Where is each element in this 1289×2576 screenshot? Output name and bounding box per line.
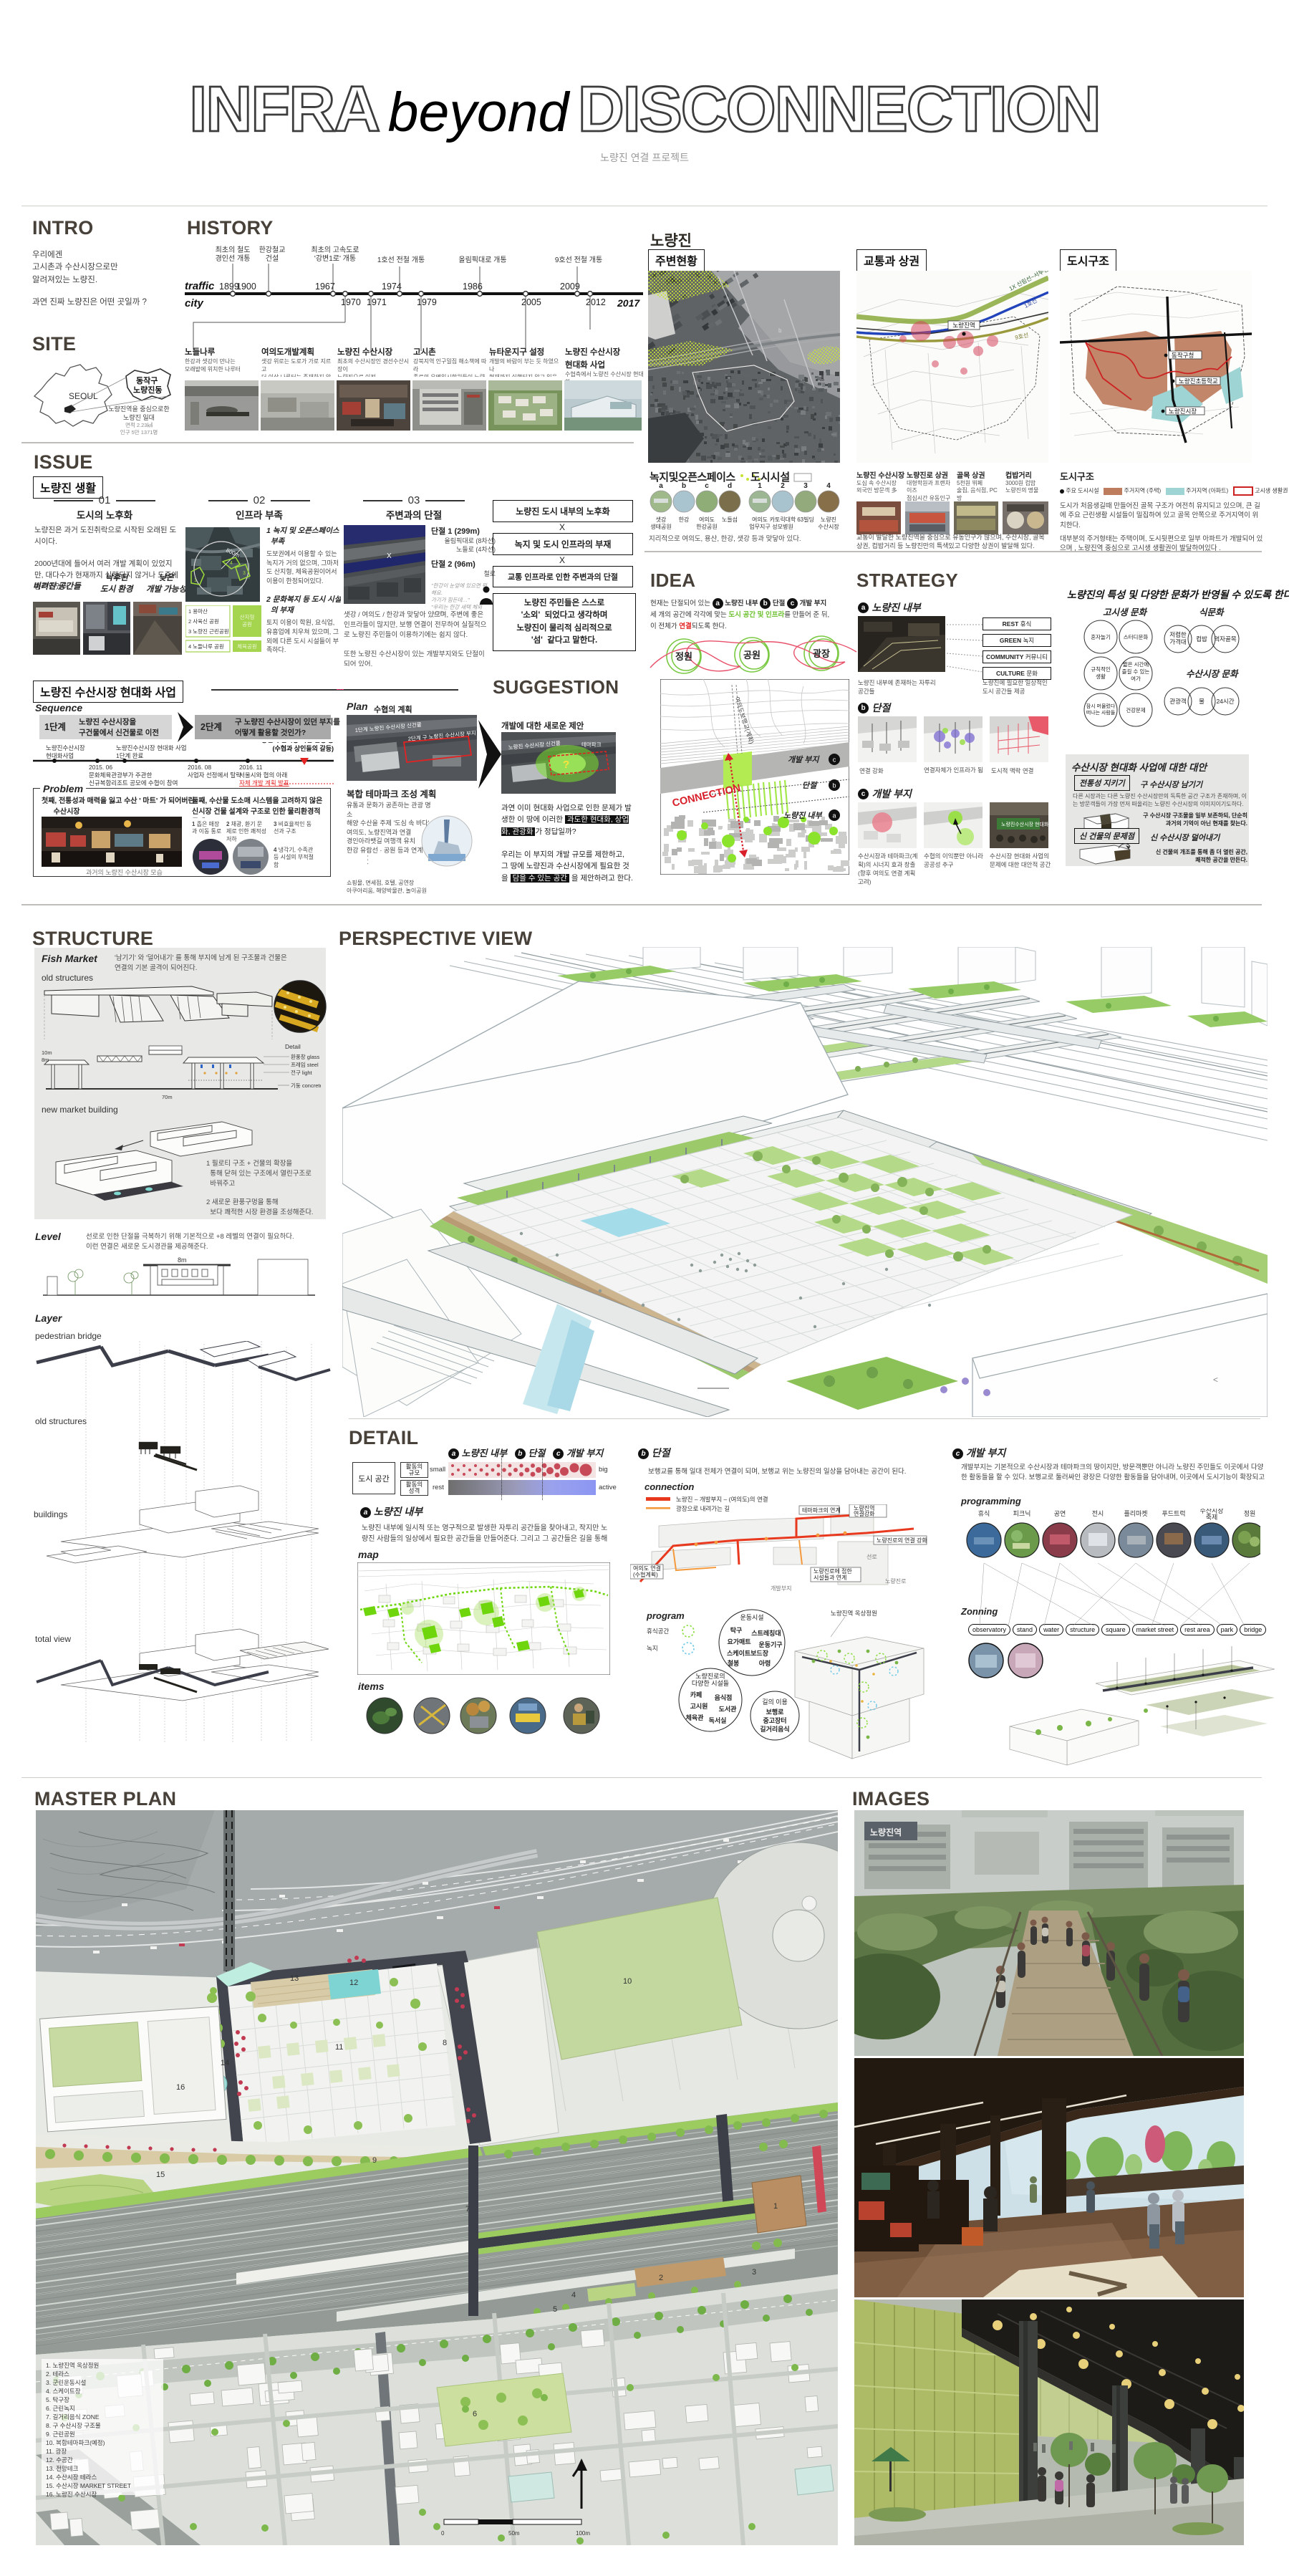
svg-text:노량진로의: 노량진로의 [695, 1672, 725, 1680]
svg-text:철봉: 철봉 [728, 1659, 740, 1667]
svg-text:짧은 시간에: 짧은 시간에 [1123, 660, 1149, 668]
svg-text:스케이트보드장: 스케이트보드장 [727, 1649, 769, 1657]
svg-text:3: 3 [243, 571, 246, 576]
svg-text:길거리음식: 길거리음식 [760, 1725, 789, 1733]
svg-text:a: a [832, 812, 836, 820]
svg-text:독서실: 독서실 [709, 1716, 727, 1724]
svg-text:광장: 광장 [813, 648, 830, 659]
svg-text:24시간: 24시간 [1216, 698, 1234, 705]
svg-text:1979: 1979 [417, 297, 437, 307]
svg-text:샛강: 샛강 [656, 516, 667, 523]
svg-text:4: 4 [571, 2291, 576, 2299]
svg-text:b: b [832, 782, 836, 789]
svg-text:5: 5 [553, 2305, 557, 2314]
svg-text:3 노량진 근린공원: 3 노량진 근린공원 [188, 628, 229, 635]
svg-text:업무지구: 업무지구 [749, 524, 770, 530]
svg-text:한강공원: 한강공원 [696, 523, 717, 530]
svg-text:15: 15 [156, 2171, 165, 2179]
svg-text:70m: 70m [162, 1094, 173, 1100]
svg-text:테마파크: 테마파크 [581, 741, 602, 748]
svg-text:시설들과 연계: 시설들과 연계 [814, 1574, 846, 1581]
svg-text:카토릭대학: 카토릭대학 [770, 516, 796, 523]
svg-text:스트레칭대: 스트레칭대 [751, 1629, 781, 1637]
svg-text:노량진로의 연결 강화: 노량진로의 연결 강화 [877, 1537, 927, 1544]
svg-text:공원: 공원 [242, 621, 252, 628]
svg-text:10: 10 [623, 1977, 632, 1986]
svg-text:8m: 8m [178, 1256, 187, 1264]
svg-text:buildings: buildings [34, 1509, 67, 1519]
svg-text:노량진수산시장 현대화 반대: 노량진수산시장 현대화 반대 [1001, 821, 1048, 827]
svg-text:경인선 개통: 경인선 개통 [216, 254, 251, 263]
svg-text:2012: 2012 [586, 297, 606, 307]
svg-text:2: 2 [781, 482, 785, 490]
svg-text:고시생 문화: 고시생 문화 [1103, 607, 1147, 617]
svg-text:탁구: 탁구 [730, 1626, 743, 1634]
svg-text:노들섬: 노들섬 [722, 516, 738, 523]
svg-text:2016. 08: 2016. 08 [188, 764, 211, 771]
svg-text:1: 1 [758, 482, 762, 490]
svg-text:전구 light: 전구 light [291, 1069, 313, 1076]
svg-text:여의도: 여의도 [752, 516, 768, 523]
svg-text:물: 물 [1199, 698, 1204, 705]
svg-text:6. 근린녹지: 6. 근린녹지 [46, 2405, 75, 2412]
svg-text:피크닉: 피크닉 [1013, 1510, 1031, 1517]
svg-text:혼자놀기: 혼자놀기 [1091, 633, 1111, 640]
svg-text:여가: 여가 [1131, 675, 1141, 682]
svg-text:여의도: 여의도 [699, 516, 715, 523]
svg-text:11: 11 [335, 2043, 343, 2052]
svg-text:노량진로에 접한: 노량진로에 접한 [814, 1567, 852, 1575]
svg-text:수산시장: 수산시장 [818, 523, 839, 530]
svg-text:old structures: old structures [35, 1416, 87, 1426]
svg-text:2015. 10: 2015. 10 [116, 742, 140, 744]
svg-text:1: 1 [773, 2202, 778, 2211]
svg-text:1974: 1974 [382, 282, 402, 292]
svg-text:b: b [778, 327, 782, 334]
svg-text:단절: 단절 [802, 781, 818, 790]
svg-text:운동기구: 운동기구 [758, 1640, 782, 1648]
svg-text:산지형: 산지형 [240, 613, 255, 620]
svg-text:자체 개발 계획 발표: 자체 개발 계획 발표 [239, 779, 289, 787]
svg-text:개발부지: 개발부지 [771, 1585, 791, 1592]
svg-text:정원: 정원 [1244, 1510, 1256, 1517]
svg-text:13: 13 [290, 1974, 299, 1983]
svg-text:규칙적인: 규칙적인 [1091, 665, 1111, 673]
svg-text:1967: 1967 [315, 282, 335, 292]
svg-text:휴식: 휴식 [978, 1510, 990, 1517]
svg-text:2010. 01: 2010. 01 [46, 742, 69, 744]
svg-text:신규복합리조트 공모에 수협이 참여: 신규복합리조트 공모에 수협이 참여 [89, 779, 178, 787]
svg-text:여의도 연결: 여의도 연결 [633, 1565, 661, 1572]
svg-text:서울시와 협의 아래: 서울시와 협의 아래 [239, 772, 287, 779]
svg-text:1: 1 [194, 578, 197, 583]
svg-text:노량진 내부: 노량진 내부 [783, 811, 823, 820]
svg-text:50m: 50m [508, 2530, 520, 2537]
svg-text:노량진로: 노량진로 [885, 1577, 906, 1585]
svg-text:14: 14 [221, 2059, 229, 2067]
svg-text:traffic: traffic [185, 280, 215, 292]
svg-text:1970: 1970 [341, 297, 361, 307]
svg-text:3: 3 [752, 2268, 756, 2277]
svg-text:보행로: 보행로 [766, 1708, 785, 1716]
svg-text:노량진동: 노량진동 [133, 385, 162, 395]
svg-text:9: 9 [372, 2156, 377, 2165]
svg-text:사업자 선정에서 탈락: 사업자 선정에서 탈락 [188, 772, 241, 779]
svg-text:스터디문화: 스터디문화 [1124, 634, 1149, 640]
svg-text:10. 복합테마파크(예정): 10. 복합테마파크(예정) [46, 2439, 105, 2446]
svg-text:12. 수공간: 12. 수공간 [46, 2456, 73, 2464]
svg-text:저렴한: 저렴한 [1169, 631, 1187, 638]
svg-text:개발 부지: 개발 부지 [788, 755, 820, 764]
svg-text:건설: 건설 [266, 254, 279, 263]
svg-text:프레임 steel: 프레임 steel [291, 1062, 319, 1068]
svg-text:11. 광장: 11. 광장 [46, 2448, 67, 2455]
svg-text:푸드트럭: 푸드트럭 [1162, 1509, 1185, 1517]
svg-text:공연: 공연 [1054, 1510, 1066, 1517]
svg-text:16. 노량진 수산시장: 16. 노량진 수산시장 [46, 2491, 97, 2498]
svg-text:생활: 생활 [1096, 673, 1106, 680]
svg-text:노량진: 노량진 [821, 516, 836, 523]
svg-text:환풍창 glass: 환풍창 glass [291, 1053, 320, 1060]
svg-text:최초의 철도: 최초의 철도 [216, 246, 251, 254]
svg-text:노량진시장: 노량진시장 [1169, 408, 1197, 415]
svg-text:가격대: 가격대 [1169, 638, 1186, 645]
svg-text:10m: 10m [42, 1049, 52, 1056]
svg-text:2016. 11: 2016. 11 [239, 764, 263, 771]
svg-text:100m: 100m [576, 2530, 590, 2537]
svg-text:1단계 완료: 1단계 완료 [116, 752, 144, 759]
svg-text:노량진수산시장: 노량진수산시장 [46, 744, 85, 751]
svg-text:3: 3 [803, 482, 808, 490]
svg-text:고시원: 고시원 [690, 1702, 708, 1710]
svg-text:X: X [387, 552, 392, 560]
svg-text:?: ? [563, 759, 569, 771]
svg-text:노량진 – 개발부지 – (여의도)의 연결: 노량진 – 개발부지 – (여의도)의 연결 [676, 1496, 768, 1503]
svg-text:한강: 한강 [679, 516, 690, 523]
svg-text:카페: 카페 [690, 1691, 703, 1698]
svg-text:식문화: 식문화 [1199, 607, 1225, 617]
svg-text:정원: 정원 [675, 651, 692, 662]
svg-text:잠시 머물렀다: 잠시 머물렀다 [1086, 703, 1116, 709]
svg-text:아령: 아령 [759, 1659, 771, 1667]
svg-text:노량진수산시장 현대화 사업: 노량진수산시장 현대화 사업 [116, 744, 187, 751]
svg-text:수산시장 문화: 수산시장 문화 [1186, 669, 1239, 679]
svg-text:1971: 1971 [367, 297, 387, 307]
svg-text:1 용마산: 1 용마산 [188, 607, 208, 615]
svg-text:도서관: 도서관 [719, 1705, 738, 1713]
svg-text:선로: 선로 [866, 1554, 877, 1560]
svg-text:13. 전망테크: 13. 전망테크 [46, 2465, 79, 2472]
svg-text:노량진초등학교: 노량진초등학교 [1179, 378, 1218, 385]
svg-text:즐길 수 있는: 즐길 수 있는 [1122, 668, 1150, 675]
svg-text:요가매트: 요가매트 [727, 1638, 751, 1645]
svg-text:노량진역: 노량진역 [952, 322, 975, 329]
svg-text:c: c [705, 482, 709, 490]
svg-text:15. 수산시장 MARKET STREET: 15. 수산시장 MARKET STREET [46, 2482, 131, 2489]
svg-text:16: 16 [176, 2083, 185, 2092]
svg-text:노량진역 옥상정원: 노량진역 옥상정원 [831, 1610, 877, 1617]
svg-text:체육관: 체육관 [686, 1714, 705, 1721]
svg-text:건강문제: 건강문제 [1126, 706, 1146, 713]
svg-text:길의 이용: 길의 이용 [762, 1698, 788, 1706]
svg-text:8: 8 [443, 2039, 447, 2047]
svg-text:a: a [659, 482, 663, 490]
svg-text:1: 1 [668, 310, 672, 317]
svg-text:8. 구 수산시장 구조물: 8. 구 수산시장 구조물 [46, 2422, 101, 2429]
svg-text:b: b [682, 482, 686, 490]
svg-text:성모병원: 성모병원 [772, 524, 793, 530]
svg-text:축제: 축제 [1206, 1514, 1218, 1521]
svg-text:2 사육신 공원: 2 사육신 공원 [188, 618, 219, 625]
svg-text:2015. 06: 2015. 06 [89, 764, 112, 771]
svg-text:현대화사업: 현대화사업 [46, 752, 74, 759]
svg-text:d: d [728, 482, 732, 490]
svg-text:14. 수산시장 테라스: 14. 수산시장 테라스 [46, 2474, 97, 2481]
svg-text:total view: total view [35, 1634, 71, 1644]
svg-text:관광객: 관광객 [1169, 698, 1186, 705]
svg-text:3. 군린운동시설: 3. 군린운동시설 [46, 2379, 87, 2386]
svg-text:기둥 concrete: 기둥 concrete [291, 1082, 321, 1089]
svg-text:체육공원: 체육공원 [237, 643, 257, 650]
svg-text:4: 4 [826, 482, 831, 490]
svg-text:2005: 2005 [521, 297, 541, 307]
svg-text:테마파크의 연계: 테마파크의 연계 [802, 1506, 841, 1514]
svg-text:9호선 전철 개통: 9호선 전철 개통 [555, 256, 602, 264]
svg-text:플리마켓: 플리마켓 [1124, 1510, 1147, 1517]
svg-text:9. 근린공원: 9. 근린공원 [46, 2431, 75, 2438]
svg-text:먹자골목: 먹자골목 [1214, 635, 1236, 643]
svg-text:최초의 고속도로: 최초의 고속도로 [311, 246, 359, 254]
svg-text:올림픽대로 개통: 올림픽대로 개통 [458, 256, 506, 264]
svg-text:2. 테라스: 2. 테라스 [46, 2370, 69, 2378]
svg-text:(수협과 상인들의 갈등): (수협과 상인들의 갈등) [272, 744, 334, 752]
svg-text:4. 스케이트장: 4. 스케이트장 [46, 2388, 81, 2395]
svg-text:휴식공간: 휴식공간 [647, 1628, 669, 1635]
svg-text:5. 탁구장: 5. 탁구장 [46, 2396, 69, 2403]
svg-text:문화체육관광부가 주관한: 문화체육관광부가 주관한 [89, 772, 153, 779]
svg-text:떠나는 사람들: 떠나는 사람들 [1086, 709, 1116, 716]
svg-text:노량진역: 노량진역 [870, 1827, 902, 1837]
svg-text:공원: 공원 [743, 650, 761, 660]
svg-text:(수협계획): (수협계획) [633, 1571, 658, 1578]
svg-text:1900: 1900 [236, 282, 256, 292]
svg-text:4 노들나루 공원: 4 노들나루 공원 [188, 643, 224, 650]
svg-text:동작구: 동작구 [136, 375, 158, 385]
svg-text:전시: 전시 [1092, 1510, 1104, 1517]
svg-text:63빌딩: 63빌딩 [797, 516, 814, 523]
svg-text:2: 2 [659, 2274, 663, 2282]
svg-text:운동시설: 운동시설 [740, 1614, 763, 1621]
svg-text:8m: 8m [42, 1057, 49, 1063]
svg-text:7: 7 [465, 2205, 470, 2214]
svg-text:0: 0 [441, 2530, 445, 2537]
svg-text:2017: 2017 [617, 297, 640, 309]
svg-text:컵밥: 컵밥 [1196, 635, 1207, 643]
svg-text:Detail: Detail [285, 1044, 301, 1050]
svg-text:6: 6 [473, 2410, 477, 2418]
svg-text:1호선 전철 개통: 1호선 전철 개통 [377, 256, 425, 264]
svg-text:12: 12 [349, 1979, 358, 1987]
svg-text:다양한 시설들: 다양한 시설들 [692, 1680, 729, 1687]
svg-text:연결강화: 연결강화 [854, 1510, 875, 1517]
svg-text:<: < [1213, 1375, 1218, 1385]
svg-text:한강철교: 한강철교 [259, 246, 286, 254]
svg-text:'강변1로' 개통: '강변1로' 개통 [314, 254, 356, 263]
svg-text:7. 길거리음식 ZONE: 7. 길거리음식 ZONE [46, 2413, 100, 2421]
svg-text:c: c [833, 756, 836, 764]
svg-text:city: city [185, 297, 204, 309]
svg-text:노량진 수산시장 이전 진행 중: 노량진 수산시장 이전 진행 중 [256, 742, 334, 744]
svg-text:생태공원: 생태공원 [650, 523, 671, 530]
svg-text:음식점: 음식점 [715, 1693, 733, 1701]
svg-text:4: 4 [230, 561, 233, 566]
svg-text:녹지: 녹지 [647, 1645, 658, 1652]
svg-text:1. 노량진역 옥상정원: 1. 노량진역 옥상정원 [46, 2362, 99, 2369]
svg-text:동작구청: 동작구청 [1172, 352, 1194, 359]
svg-text:중고장터: 중고장터 [763, 1716, 786, 1724]
